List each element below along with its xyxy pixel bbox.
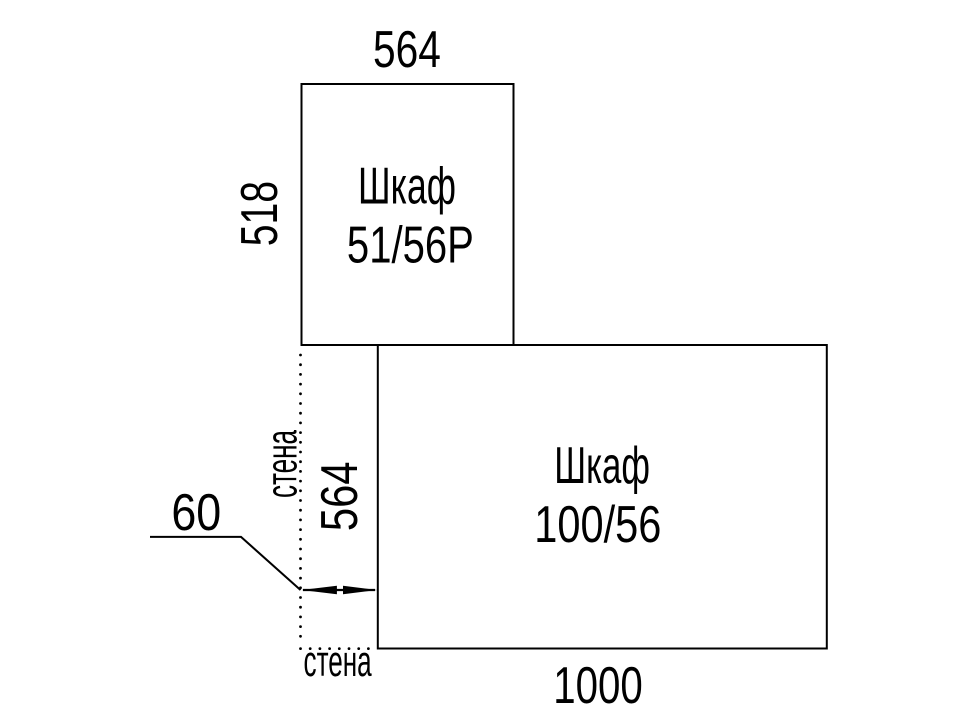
svg-text:564: 564 xyxy=(311,462,368,532)
svg-text:51/56Р: 51/56Р xyxy=(347,215,474,273)
svg-text:564: 564 xyxy=(373,21,441,79)
svg-text:стена: стена xyxy=(258,430,307,498)
svg-text:Шкаф: Шкаф xyxy=(358,158,456,215)
svg-text:518: 518 xyxy=(231,181,288,246)
svg-text:1000: 1000 xyxy=(553,656,643,714)
svg-text:стена: стена xyxy=(304,637,372,686)
svg-text:Шкаф: Шкаф xyxy=(554,437,650,494)
svg-text:100/56: 100/56 xyxy=(534,496,661,553)
svg-text:60: 60 xyxy=(171,484,221,542)
